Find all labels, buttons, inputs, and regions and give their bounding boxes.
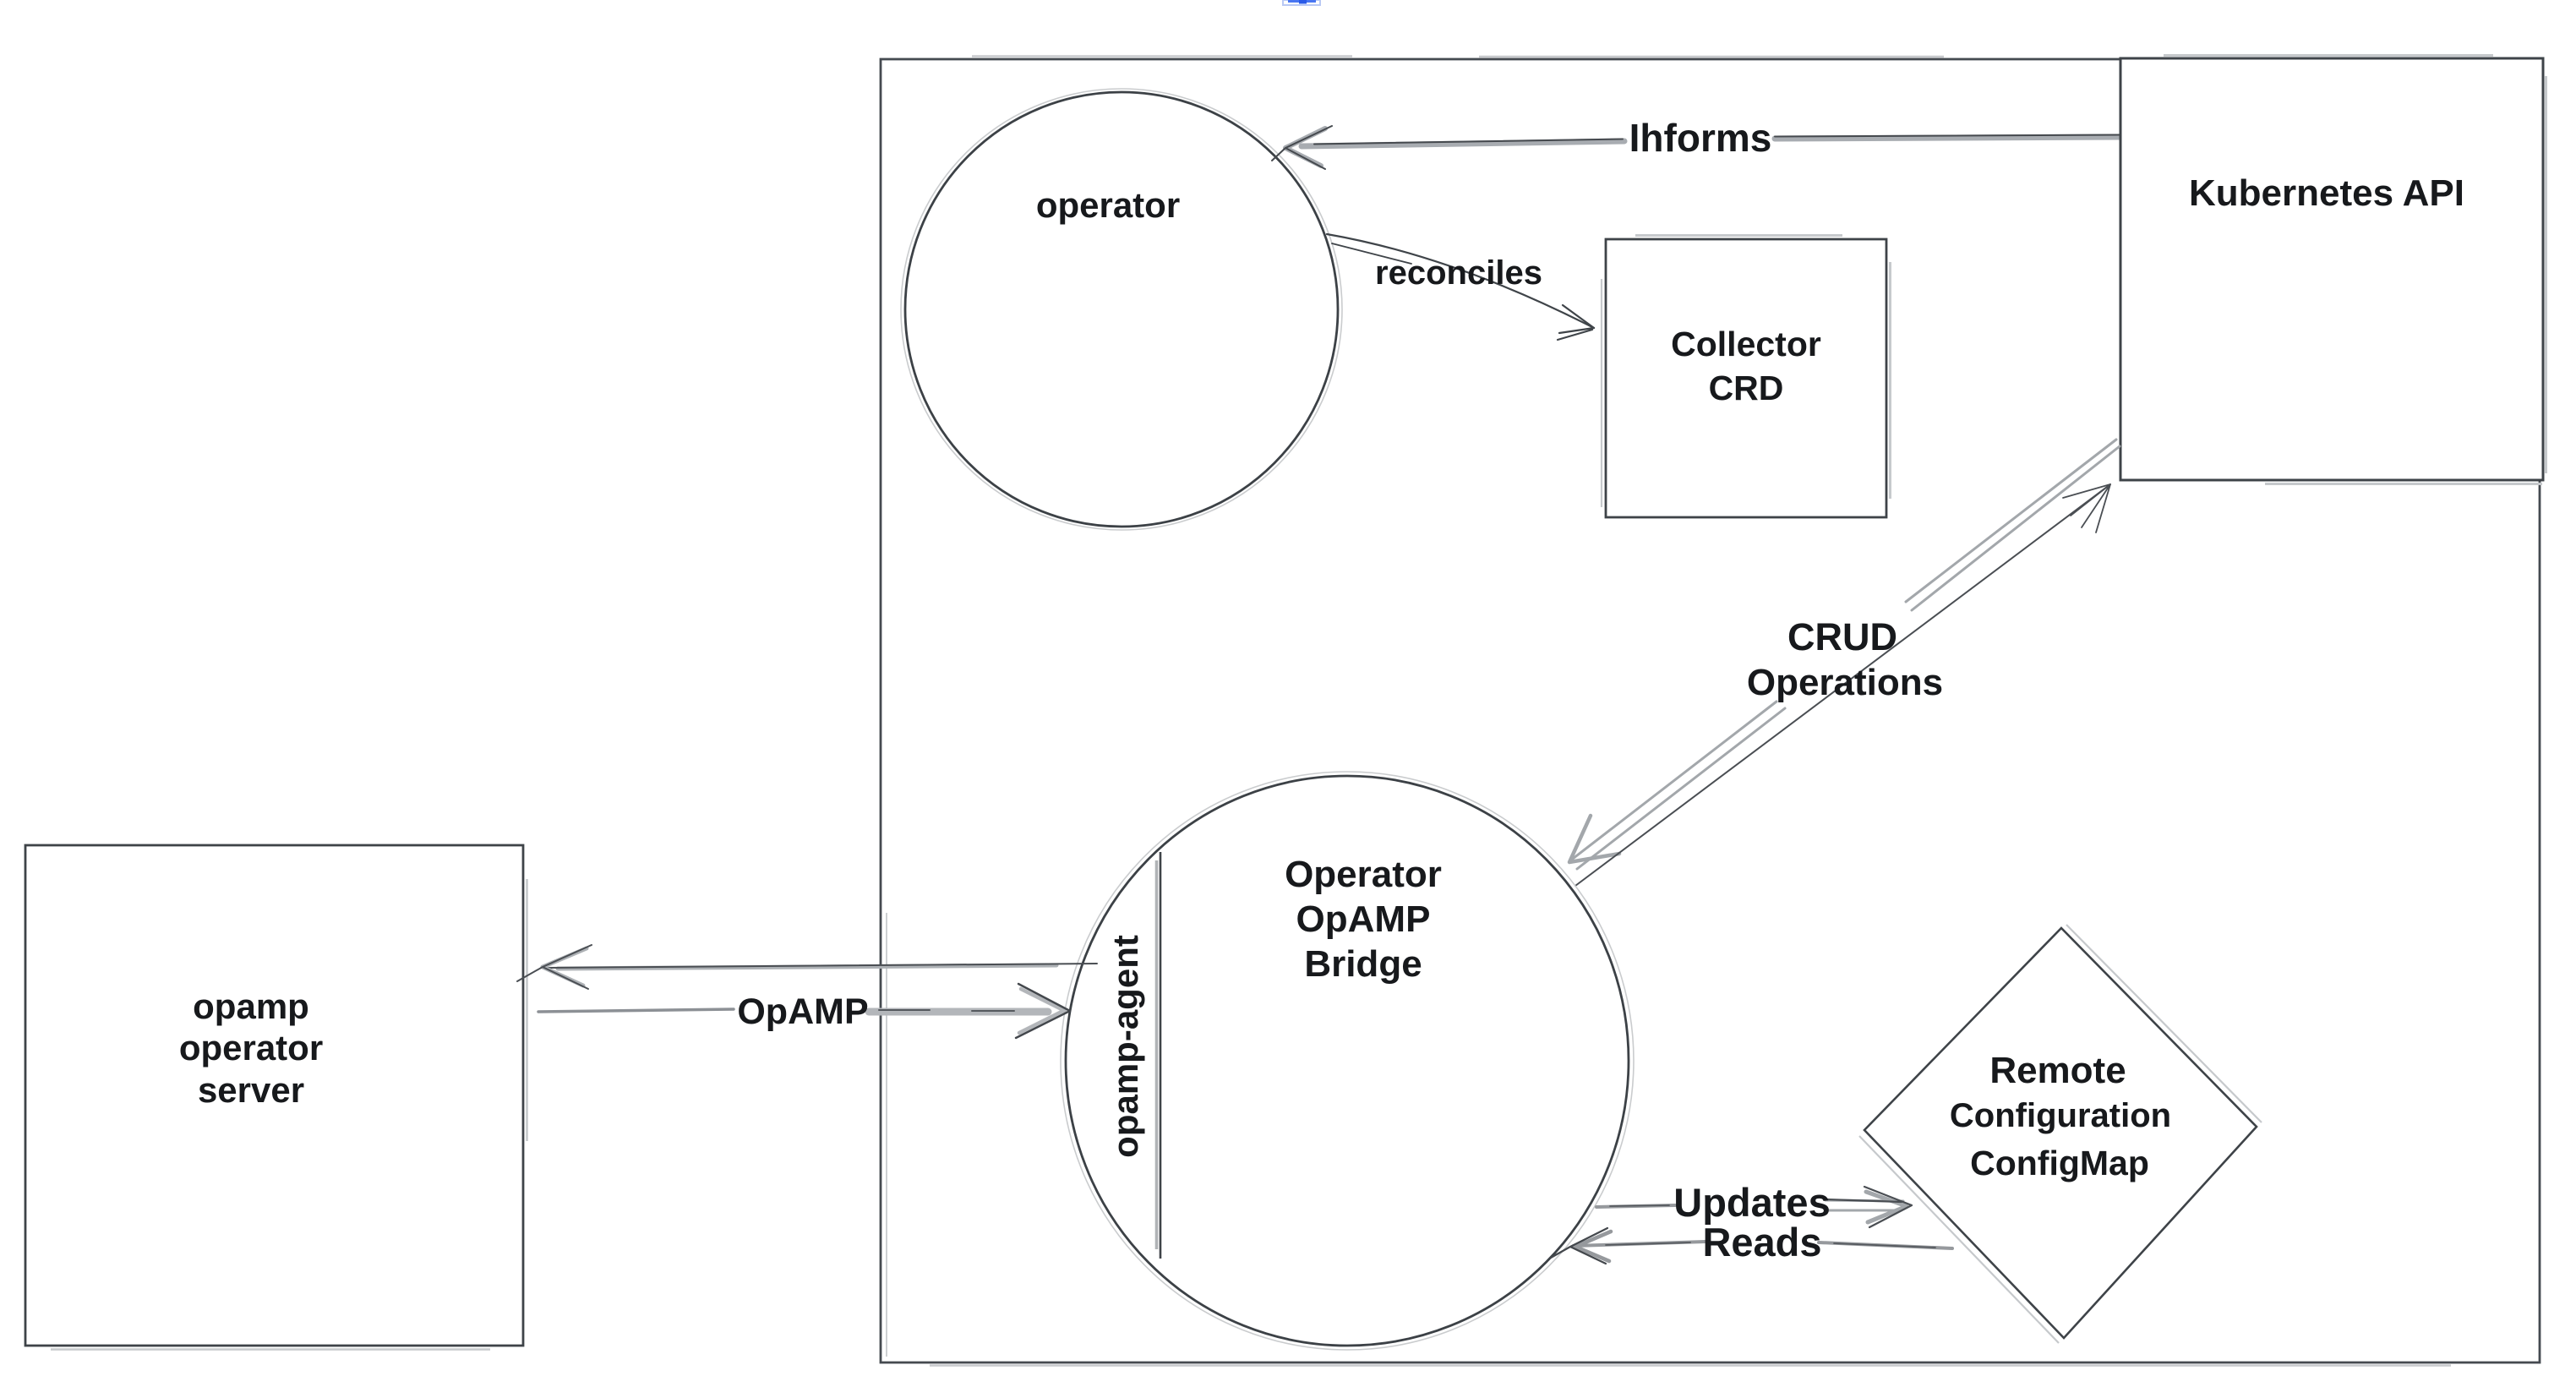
svg-text:Collector: Collector: [1671, 325, 1821, 363]
svg-text:CRD: CRD: [1709, 369, 1784, 407]
svg-text:OpAMP: OpAMP: [737, 991, 868, 1032]
svg-text:Operations: Operations: [1747, 662, 1943, 703]
svg-text:Ihforms: Ihforms: [1629, 116, 1772, 160]
svg-text:operator: operator: [1036, 185, 1180, 225]
svg-text:Updates: Updates: [1673, 1180, 1830, 1225]
svg-text:Reads: Reads: [1702, 1220, 1821, 1264]
svg-text:Remote: Remote: [1989, 1050, 2126, 1091]
svg-text:opamp-agent: opamp-agent: [1105, 935, 1145, 1158]
svg-text:Kubernetes API: Kubernetes API: [2189, 172, 2464, 214]
svg-text:Bridge: Bridge: [1304, 943, 1422, 985]
svg-text:ConfigMap: ConfigMap: [1970, 1144, 2149, 1182]
svg-text:CRUD: CRUD: [1787, 615, 1897, 658]
svg-text:OpAMP: OpAMP: [1296, 898, 1431, 940]
svg-text:server: server: [198, 1070, 304, 1110]
svg-text:Configuration: Configuration: [1950, 1097, 2171, 1134]
svg-text:operator: operator: [179, 1028, 323, 1068]
svg-text:reconciles: reconciles: [1375, 254, 1542, 292]
svg-text:opamp: opamp: [193, 986, 309, 1026]
svg-text:Operator: Operator: [1285, 854, 1442, 895]
